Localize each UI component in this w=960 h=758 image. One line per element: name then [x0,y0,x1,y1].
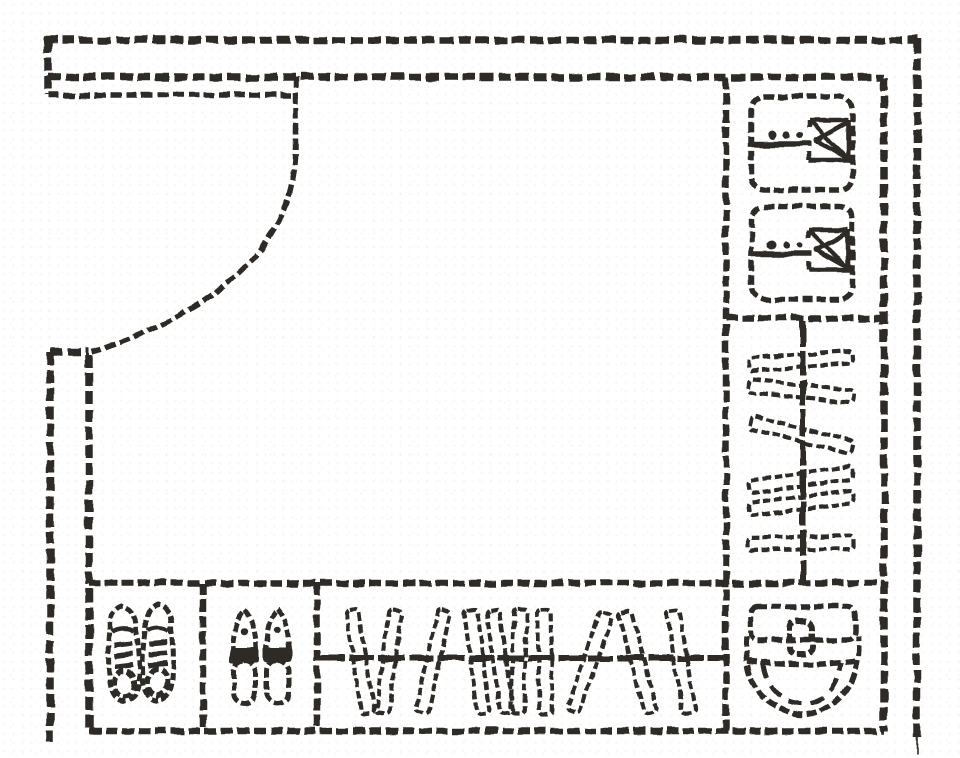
folded-garment-stacks [752,97,853,300]
hanging-garment-bar [567,611,613,714]
hanging-garment-bar [345,610,374,715]
slipper [230,611,259,705]
bottom-hanging-garments [345,610,695,715]
hanging-garment-bar [415,610,451,714]
hanging-garment-bar [666,610,695,715]
slippers-pair [230,610,292,705]
floor-plan-canvas [0,0,960,758]
floor-plan [0,0,960,758]
sneakers-pair [107,604,175,702]
handbag-inner-curve [763,663,841,703]
handbag [746,607,859,714]
handbag-body [746,637,859,714]
sneaker [142,604,174,701]
door-swing-arc [92,77,296,352]
hanging-garment-bar [618,610,657,714]
hanging-garment-bar [486,610,513,715]
hanging-garment-bar [538,610,553,714]
sneaker [107,605,141,702]
hanging-garment-bar [464,610,490,715]
hanging-garment-bar [376,610,402,715]
entry-door [48,77,296,352]
folded-garment [752,207,853,300]
slipper [263,610,292,704]
folded-garment [752,97,853,190]
closet-partitions [89,77,884,731]
